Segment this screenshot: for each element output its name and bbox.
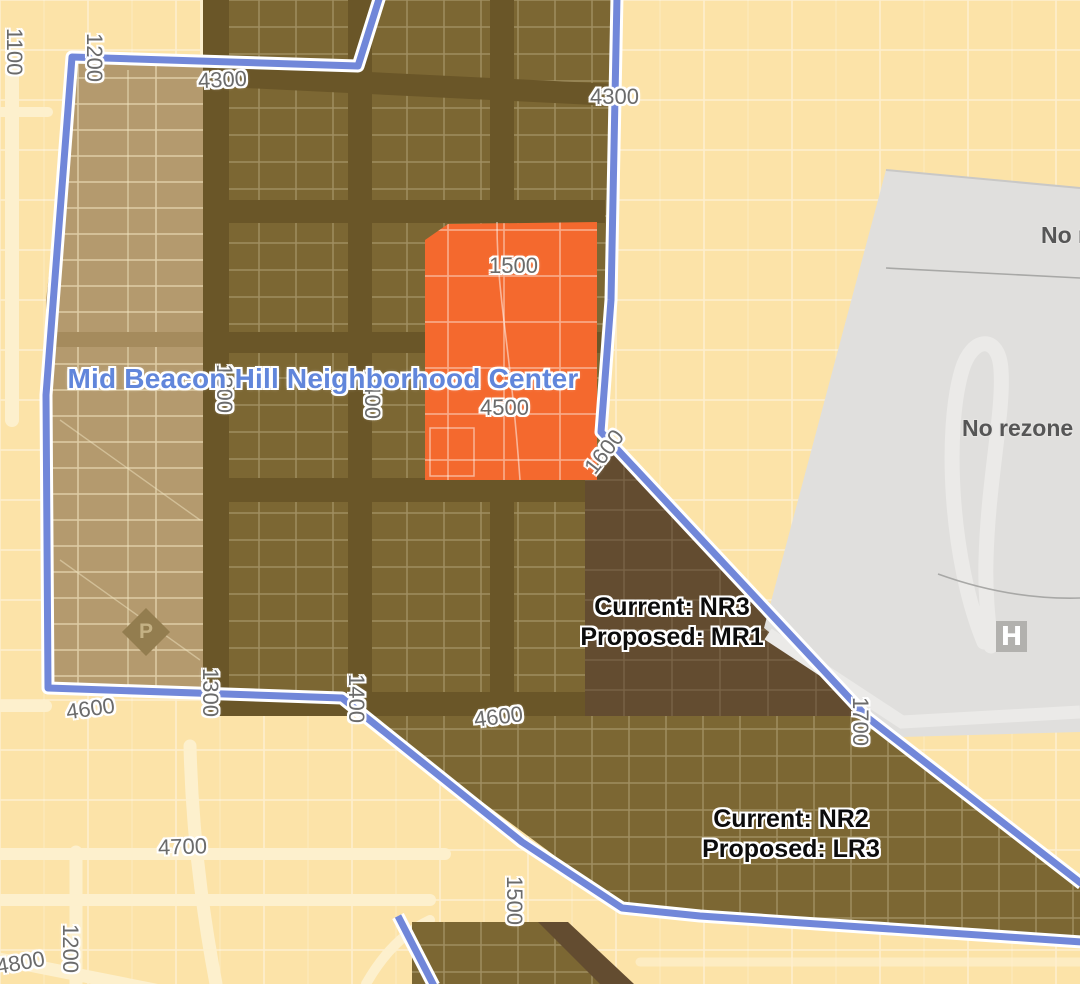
street-label-1200: 1200 <box>58 924 82 973</box>
street-label-1500: 1500 <box>489 254 538 278</box>
annotation-current-line: Current: NR2 <box>671 804 911 834</box>
street-label-1700: 1700 <box>848 697 872 746</box>
street-label-1300: 1300 <box>198 668 222 717</box>
street-label-4300: 4300 <box>590 85 639 109</box>
street-label-1200: 1200 <box>82 33 106 82</box>
street-label-4700: 4700 <box>158 834 208 860</box>
street-label-4500: 4500 <box>480 396 529 420</box>
street-label-4300: 4300 <box>197 67 247 94</box>
annotation-proposed-line: Proposed: LR3 <box>671 834 911 864</box>
rezone-annotation-nr3: Current: NR3 Proposed: MR1 <box>552 592 792 652</box>
annotation-current-line: Current: NR3 <box>552 592 792 622</box>
no-rezone-note-mid: No rezone pr <box>962 415 1080 442</box>
street-label-1500: 1500 <box>502 876 526 925</box>
park-icon-letter: P <box>139 620 153 644</box>
annotation-proposed-line: Proposed: MR1 <box>552 622 792 652</box>
no-rezone-note-top: No r <box>1041 222 1080 249</box>
rezone-annotation-nr2: Current: NR2 Proposed: LR3 <box>671 804 911 864</box>
street-label-1100: 1100 <box>2 28 26 75</box>
zoning-map-canvas[interactable]: 1100120043004300150045001300140016001300… <box>0 0 1080 984</box>
neighborhood-center-title: Mid Beacon Hill Neighborhood Center <box>58 363 588 395</box>
hospital-icon: H <box>996 621 1027 652</box>
street-label-1400: 1400 <box>344 674 368 723</box>
